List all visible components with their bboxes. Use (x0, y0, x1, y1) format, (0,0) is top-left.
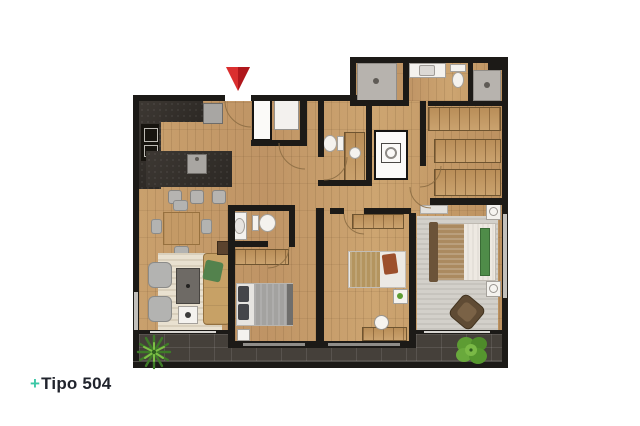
closet-door-arc (420, 166, 441, 187)
entry-door-arc (225, 101, 251, 127)
unit-caption: +Tipo 504 (30, 374, 111, 394)
entrance-marker-icon (225, 65, 251, 93)
guest-bath-door-arc (324, 157, 347, 180)
ensuite-door-arc (268, 247, 289, 268)
floor-plan: +Tipo 504 (0, 0, 640, 426)
vestibule-door-arc (279, 143, 305, 169)
caption-accent-plus: + (30, 374, 40, 393)
bedroom2-door-arc (344, 214, 364, 234)
spiky-plant-icon (134, 333, 174, 371)
leafy-plant-icon (454, 333, 490, 367)
master-door-arc (410, 187, 431, 208)
caption-label: Tipo 504 (41, 374, 111, 393)
door-arcs (0, 0, 640, 426)
floorplan-page: { "caption": { "prefix": "+", "label": "… (0, 0, 640, 426)
